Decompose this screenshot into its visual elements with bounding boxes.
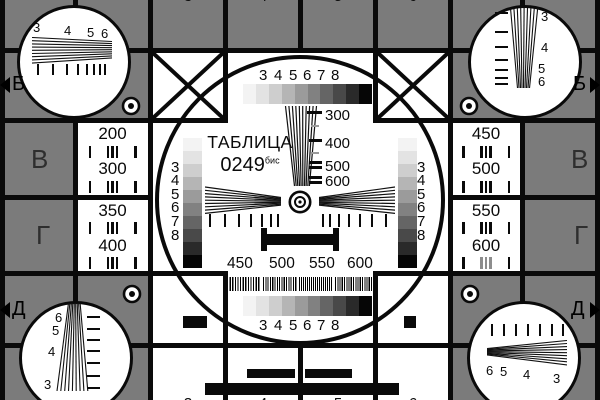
right-arrow-icon xyxy=(590,77,600,93)
grid-line xyxy=(373,271,453,276)
corner-dash xyxy=(87,350,100,352)
corner-wedge-top-right xyxy=(507,8,541,88)
cut-digit: 5 xyxy=(331,0,345,4)
corner-tick xyxy=(37,64,39,75)
wedge-tick xyxy=(309,139,322,142)
reference-rect-left xyxy=(183,316,207,328)
corner-dash xyxy=(87,328,100,330)
corner-tick xyxy=(515,324,517,336)
reference-rect-right xyxy=(404,316,416,328)
corner-dash xyxy=(495,31,508,33)
corner-dash xyxy=(87,362,100,364)
grayscale-bottom xyxy=(243,296,372,316)
grid-line xyxy=(148,271,228,276)
frequency-grating xyxy=(335,277,372,291)
calib-tick xyxy=(250,214,252,227)
corner-dash xyxy=(87,387,100,389)
grayscale-step xyxy=(398,229,417,242)
calib-tick xyxy=(238,214,240,227)
scale-label: 5 xyxy=(289,67,297,84)
row-letter-g-left: Г xyxy=(36,220,50,251)
bottom-bar-wide xyxy=(205,383,399,395)
bullseye-icon xyxy=(458,95,480,117)
grayscale-step xyxy=(183,151,202,164)
corner-dash xyxy=(495,46,508,48)
row-letter-g-right: Г xyxy=(574,220,588,251)
corner-tick xyxy=(503,324,505,336)
grayscale-top xyxy=(243,84,372,104)
cut-digits-bottom: 3456 xyxy=(0,396,600,400)
cut-digit: 3 xyxy=(181,0,195,4)
corner-tick xyxy=(99,64,101,75)
corner-label: 3 xyxy=(541,9,548,24)
scale-label: 7 xyxy=(317,67,325,84)
grayscale-step xyxy=(398,138,417,151)
corner-label: 4 xyxy=(541,40,548,55)
corner-tick xyxy=(86,64,88,75)
grayscale-step xyxy=(269,84,282,104)
grid-line xyxy=(0,0,5,400)
grayscale-step xyxy=(308,296,321,316)
corner-tick xyxy=(562,324,564,336)
cell-ticks xyxy=(89,181,137,193)
bullseye-icon xyxy=(121,283,143,305)
grayscale-step xyxy=(359,296,372,316)
resolution-cell-right-v: 450 500 xyxy=(453,123,520,195)
calib-tick xyxy=(348,214,350,227)
grayscale-step xyxy=(183,190,202,203)
grayscale-step xyxy=(398,151,417,164)
cell-ticks xyxy=(462,181,510,193)
marker-letter-d-left: Д xyxy=(12,298,26,321)
scale-label: 3 xyxy=(259,67,267,84)
corner-dash xyxy=(495,77,508,79)
wedge-mark-label: 400 xyxy=(325,135,350,152)
grid-line xyxy=(373,273,378,348)
scale-label: 7 xyxy=(317,317,325,334)
cell-number: 600 xyxy=(453,236,520,256)
cell-number: 550 xyxy=(453,201,520,221)
grayscale-step xyxy=(398,177,417,190)
grayscale-step xyxy=(183,164,202,177)
card-number-suffix: бис xyxy=(265,155,280,165)
center-bullseye-icon xyxy=(286,188,314,216)
grayscale-step xyxy=(183,216,202,229)
corner-label: 3 xyxy=(44,377,51,392)
card-title: ТАБЛИЦА 0249бис xyxy=(203,132,297,177)
resolution-cell-right-g: 550 600 xyxy=(453,200,520,271)
calib-tick xyxy=(322,214,324,227)
cut-digits-top: 3456 xyxy=(0,0,600,4)
corner-wedge-bottom-right xyxy=(487,340,567,366)
frequency-grating xyxy=(263,277,297,291)
grayscale-step xyxy=(398,242,417,255)
cell-number: 500 xyxy=(453,159,520,179)
corner-label: 4 xyxy=(523,367,530,382)
left-arrow-icon xyxy=(0,77,10,93)
grayscale-step xyxy=(308,84,321,104)
calib-tick xyxy=(224,214,226,227)
wedge-tick xyxy=(309,181,322,184)
ibeam-cap xyxy=(261,228,267,251)
grayscale-step xyxy=(398,255,417,268)
corner-label: 5 xyxy=(52,323,59,338)
grayscale-step xyxy=(183,177,202,190)
corner-label: 4 xyxy=(64,23,71,38)
corner-dash xyxy=(87,375,100,377)
cell-number: 200 xyxy=(78,124,148,144)
calib-tick xyxy=(359,214,361,227)
corner-tick xyxy=(77,64,79,75)
scale-label: 8 xyxy=(331,67,339,84)
grayscale-step xyxy=(398,190,417,203)
calib-tick xyxy=(329,214,331,227)
calib-tick xyxy=(209,214,211,227)
grayscale-step xyxy=(183,255,202,268)
scale-label: 8 xyxy=(331,317,339,334)
corner-tick xyxy=(93,64,95,75)
grayscale-step xyxy=(282,296,295,316)
frequency-label: 450 xyxy=(227,255,253,273)
corner-tick xyxy=(52,64,54,75)
grayscale-step xyxy=(398,216,417,229)
cut-digit: 4 xyxy=(256,0,270,4)
corner-label: 5 xyxy=(500,364,507,379)
cell-ticks xyxy=(462,146,510,158)
resolution-cell-left-g: 350 400 xyxy=(78,200,148,271)
cell-ticks xyxy=(89,146,137,158)
cell-number: 300 xyxy=(78,159,148,179)
ibeam-bar xyxy=(266,234,334,245)
bullseye-icon xyxy=(459,283,481,305)
corner-tick xyxy=(551,324,553,336)
scale-label: 6 xyxy=(303,67,311,84)
cut-digit: 4 xyxy=(256,396,270,400)
scale-label: 6 xyxy=(303,317,311,334)
bottom-bar-segment xyxy=(247,369,295,378)
grayscale-step xyxy=(256,296,269,316)
grayscale-step xyxy=(282,84,295,104)
corner-dash xyxy=(87,316,100,318)
cell-number: 400 xyxy=(78,236,148,256)
corner-dash xyxy=(495,69,508,71)
corner-dash xyxy=(495,12,508,14)
corner-label: 6 xyxy=(538,74,545,89)
calib-tick xyxy=(371,214,373,227)
wedge-tick xyxy=(309,161,322,164)
grayscale-step xyxy=(183,242,202,255)
corner-label: 3 xyxy=(553,371,560,386)
grayscale-step xyxy=(398,203,417,216)
cut-digit: 3 xyxy=(181,396,195,400)
frequency-label: 500 xyxy=(269,255,295,273)
grayscale-left xyxy=(183,138,202,268)
right-arrow-icon xyxy=(590,302,600,318)
wedge-tick-minor xyxy=(311,125,319,127)
calib-tick xyxy=(385,214,387,227)
cell-ticks xyxy=(462,257,510,269)
corner-wedge-top-left xyxy=(32,37,112,65)
wedge-mark-label: 300 xyxy=(325,107,350,124)
grayscale-step xyxy=(269,296,282,316)
grayscale-step xyxy=(320,296,333,316)
scale-label: 3 xyxy=(259,317,267,334)
calib-tick xyxy=(338,214,340,227)
grayscale-step xyxy=(398,164,417,177)
grayscale-step xyxy=(346,296,359,316)
marker-letter-d-right: Д xyxy=(571,298,585,321)
bottom-bar-segment xyxy=(305,369,352,378)
marker-letter-b-left: Б xyxy=(12,73,25,96)
frequency-label: 550 xyxy=(309,255,335,273)
grayscale-right xyxy=(398,138,417,268)
corner-label: 4 xyxy=(48,344,55,359)
scale-label: 4 xyxy=(274,317,282,334)
cell-ticks xyxy=(462,222,510,234)
horizontal-wedge-left xyxy=(205,186,281,216)
grayscale-step xyxy=(183,203,202,216)
corner-tick xyxy=(491,324,493,336)
marker-letter-b-right: Б xyxy=(573,73,586,96)
horizontal-wedge-right xyxy=(319,186,395,216)
corner-dash xyxy=(495,83,508,85)
grayscale-step xyxy=(320,84,333,104)
grayscale-step xyxy=(256,84,269,104)
grayscale-step xyxy=(295,296,308,316)
corner-tick xyxy=(527,324,529,336)
scale-label: 5 xyxy=(289,317,297,334)
grayscale-step xyxy=(359,84,372,104)
grid-line xyxy=(223,273,228,348)
cell-ticks xyxy=(89,222,137,234)
row-letter-v-right: В xyxy=(571,144,588,175)
grayscale-step xyxy=(295,84,308,104)
corner-label: 3 xyxy=(33,20,40,35)
grayscale-step xyxy=(183,138,202,151)
grayscale-step xyxy=(346,84,359,104)
card-number: 0249бис xyxy=(203,154,297,177)
scale-label: 8 xyxy=(417,227,425,244)
frequency-grating xyxy=(227,277,261,291)
wedge-tick xyxy=(309,166,322,169)
corner-dash xyxy=(495,59,508,61)
corner-tick xyxy=(104,64,106,75)
cut-digit: 6 xyxy=(406,0,420,4)
corner-dash xyxy=(87,339,100,341)
grid-line xyxy=(595,0,600,400)
cell-ticks xyxy=(89,257,137,269)
corner-tick xyxy=(66,64,68,75)
cut-digit: 5 xyxy=(331,396,345,400)
grayscale-step xyxy=(243,84,256,104)
scale-label: 4 xyxy=(274,67,282,84)
cell-number: 450 xyxy=(453,124,520,144)
grayscale-step xyxy=(243,296,256,316)
grayscale-step xyxy=(333,296,346,316)
frequency-grating xyxy=(299,277,333,291)
ibeam-cap xyxy=(333,228,339,251)
tv-test-card: 345678 345678 345678 345678 300400500600… xyxy=(0,0,600,400)
card-title-word: ТАБЛИЦА xyxy=(203,132,297,153)
cell-number: 350 xyxy=(78,201,148,221)
wedge-tick xyxy=(307,111,322,114)
calib-tick xyxy=(277,214,279,227)
bullseye-icon xyxy=(120,95,142,117)
calib-tick xyxy=(270,214,272,227)
grayscale-step xyxy=(183,229,202,242)
corner-label: 6 xyxy=(486,363,493,378)
corner-tick xyxy=(539,324,541,336)
frequency-label: 600 xyxy=(347,255,373,273)
grayscale-step xyxy=(333,84,346,104)
resolution-cell-left-v: 200 300 xyxy=(78,123,148,195)
wedge-tick xyxy=(309,176,322,179)
cut-digit: 6 xyxy=(406,396,420,400)
calib-tick xyxy=(261,214,263,227)
wedge-tick-minor xyxy=(311,152,319,154)
scale-label: 8 xyxy=(171,227,179,244)
row-letter-v-left: В xyxy=(31,144,48,175)
left-arrow-icon xyxy=(0,302,10,318)
